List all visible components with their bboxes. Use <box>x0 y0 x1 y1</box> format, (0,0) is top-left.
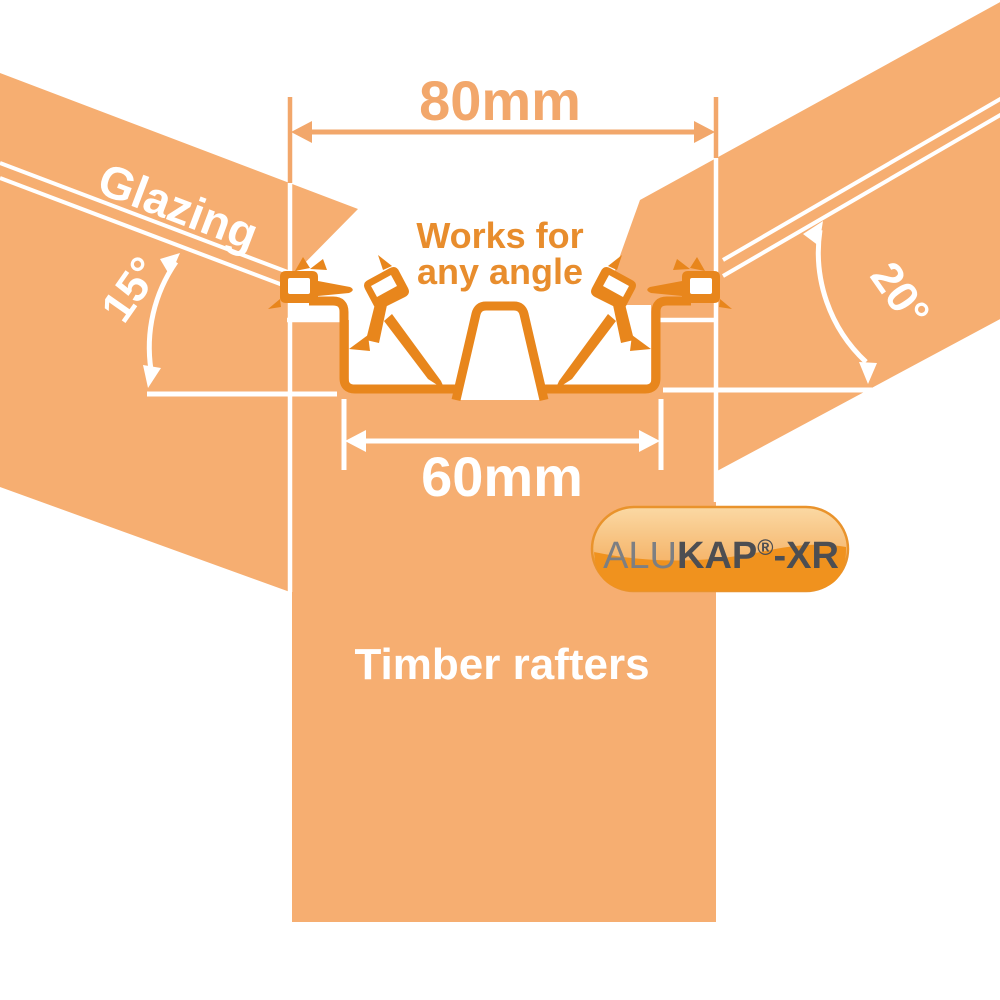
dim-60-label: 60mm <box>421 445 583 508</box>
left-inner-clip-top-spike <box>378 255 392 270</box>
works-for-line1: Works for <box>416 215 583 256</box>
badge-registered-mark: ® <box>757 535 773 560</box>
works-for-line2: any angle <box>417 251 583 292</box>
left-outer-clip-gasket-wing <box>318 281 353 296</box>
left-outer-clip-slot <box>288 278 310 294</box>
badge-kap: KAP <box>677 535 757 577</box>
badge-wordmark: ALUKAP®-XR <box>603 535 839 577</box>
dimension-80mm: 80mm <box>290 69 716 183</box>
timber-rafters-label: Timber rafters <box>354 640 649 689</box>
dim-80-label: 80mm <box>419 69 581 132</box>
diagram-svg: Glazing Timber rafters <box>0 0 1000 1000</box>
dim-80-arrow-right <box>694 121 715 143</box>
dim-80-arrow-left <box>291 121 312 143</box>
badge-xr: -XR <box>773 535 838 577</box>
alukap-xr-badge: ALUKAP®-XR <box>592 507 848 591</box>
timber-rafter: Timber rafters <box>292 320 716 922</box>
right-outer-clip-slot <box>690 278 712 294</box>
left-outer-clip-fin-2 <box>310 259 327 270</box>
badge-alu: ALU <box>603 535 677 577</box>
timber-rafter-block <box>292 320 716 922</box>
works-for-any-angle: Works for any angle <box>416 215 583 292</box>
glazing-bar-diagram: Glazing Timber rafters <box>0 0 1000 1000</box>
